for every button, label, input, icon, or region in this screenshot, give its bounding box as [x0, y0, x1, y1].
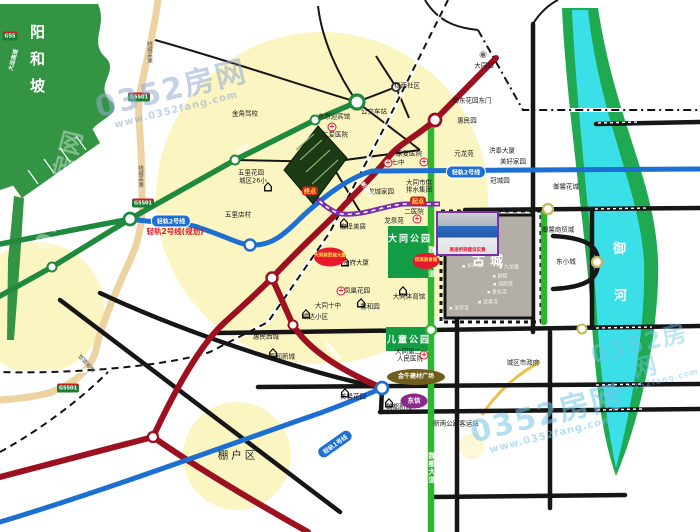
map-label: 大同十中 [315, 302, 341, 309]
building-icon: ⌂ [356, 293, 366, 312]
map-label: 惠民园 [457, 117, 477, 124]
map-label: 金角驾校 [232, 110, 258, 117]
cross-icon: + [420, 351, 429, 360]
building-icon: ⌂ [339, 213, 349, 232]
datong-park-label: 大同公园 [388, 232, 432, 245]
road-node [543, 204, 553, 214]
road-node [48, 263, 57, 272]
poi-ellipse-label: 金牛建材广场 [387, 369, 445, 385]
route-endpoint-pill: 终点 [302, 187, 318, 196]
map-label: 魏都大道 [427, 452, 435, 484]
map-label: 绕城高速 [137, 165, 143, 187]
poi-ellipse-label: 大同商贸城大厦 [314, 248, 346, 267]
river-label-char: 御 [613, 238, 626, 257]
road-node [592, 257, 602, 267]
map-label: 东小城 [556, 258, 576, 265]
building-icon: ⌂ [398, 281, 408, 300]
road-node [429, 114, 441, 126]
cross-icon: + [420, 158, 429, 167]
map-label: 龙泉苑 [384, 217, 404, 224]
road-node [267, 273, 278, 284]
old-city-poi-label: ▪ 鼓楼 [493, 274, 508, 280]
construction-photo-inset: 高速桥梁建设实景 [436, 211, 499, 256]
rail-line-pill: 轻轨2号线 [446, 166, 486, 179]
region-label-yanghepo: 阳和坡 [27, 24, 48, 105]
old-city-poi-label: ▪ 法华寺 [449, 306, 469, 312]
shanty-area-label: 棚户区 [218, 448, 259, 463]
map-label: 绕城高速 [146, 41, 152, 63]
river [562, 8, 658, 476]
cross-icon: + [328, 123, 337, 132]
photo-caption: 高速桥梁建设实景 [438, 248, 497, 254]
road-node [124, 213, 136, 225]
map-label: 梧西社区 [394, 82, 420, 89]
poi-ellipse-label: 东信 [401, 394, 428, 409]
old-city-poi-label: ▪ 善化寺 [487, 290, 507, 296]
building-icon: ⌂ [301, 304, 311, 323]
highlight-zone-small [459, 433, 485, 459]
yellow-road [482, 362, 540, 415]
building-icon: ⌂ [340, 383, 350, 402]
map-label: 御东花园东门 [453, 97, 492, 104]
building-icon: ⌂ [263, 177, 273, 196]
rail-line-pill: 轻轨2号线 [151, 215, 191, 228]
map-label: 五里店村 [225, 211, 251, 218]
map-label: 公交车站 [361, 108, 387, 115]
map-label: 御馨商贸城 [542, 226, 575, 233]
expressway-badge: G55 [2, 32, 17, 41]
children-park-label: 儿童公园 [387, 333, 431, 346]
station-icon: ◉ [479, 50, 487, 60]
road-node [578, 325, 587, 334]
map-label: 洪泰大厦 [489, 147, 515, 154]
old-city-poi-label: ▪ 清真寺 [478, 300, 498, 306]
expressway-badge: G5501 [128, 93, 150, 102]
road-node [148, 432, 158, 442]
cross-icon: + [384, 159, 393, 168]
map-label: 冠城园 [490, 177, 510, 184]
map-label: 京原迎宾馆 [318, 113, 351, 120]
old-city-poi-label: ▪ 纯阳宫 [493, 282, 513, 288]
map-label: 元龙苑 [454, 150, 474, 157]
route-endpoint-pill: 起点 [410, 197, 426, 206]
map-label: 轻轨2号线(规划) [146, 228, 203, 236]
city-map: 阳和坡 古城 御 河 大同公园 儿童公园 棚户区 高速桥梁建设实景 金角驾校京原… [0, 0, 700, 532]
road-node [231, 156, 240, 165]
map-label: 城区市政府 [507, 359, 540, 366]
map-label: 御馨花城 [553, 183, 579, 190]
map-label: 仁爱医院 [322, 131, 348, 138]
map-label: 康复医院 [396, 150, 422, 157]
map-label: 七中 [392, 159, 405, 166]
road-node [289, 321, 298, 330]
river-label-char: 河 [614, 285, 627, 304]
road-node [245, 240, 256, 251]
expressway-badge: G5501 [57, 384, 79, 393]
map-label: 美好家园 [500, 158, 526, 165]
building-icon: ⌂ [384, 393, 394, 412]
map-label: 惠民西城 [253, 333, 279, 340]
building-icon: ⌂ [268, 343, 278, 362]
cross-icon: + [413, 215, 422, 224]
cross-icon: + [337, 287, 346, 296]
map-label: 新南公路客运站 [433, 420, 479, 427]
map-label: 排水集团 [406, 186, 432, 193]
expressway-badge: G5501 [132, 199, 154, 208]
map-label: 大同站 [474, 62, 494, 69]
